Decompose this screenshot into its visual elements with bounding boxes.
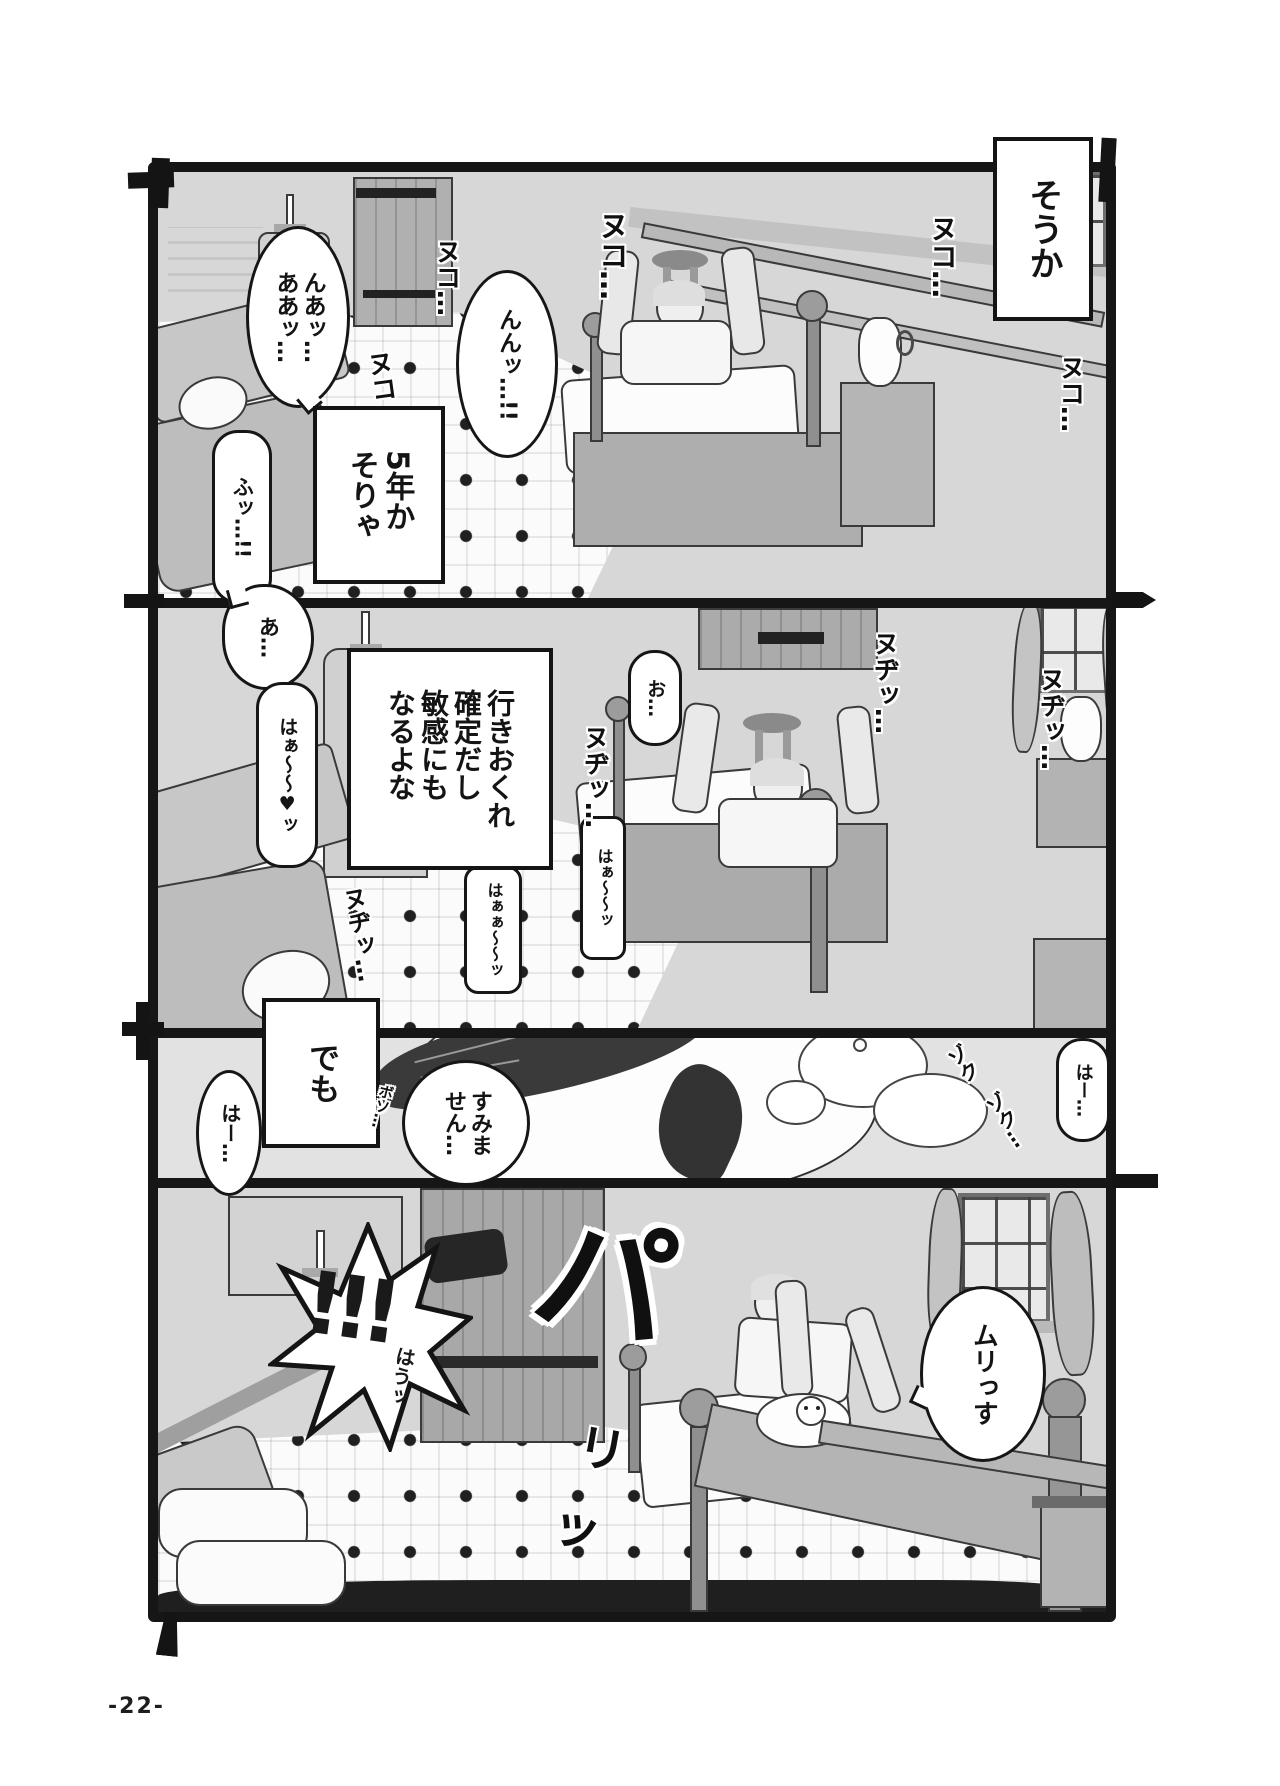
jug-handle — [896, 330, 914, 356]
face-eye-dot — [816, 1406, 820, 1410]
bed-post-finial — [796, 290, 828, 322]
border-tick — [136, 1002, 149, 1060]
door-hinge — [356, 188, 436, 198]
caption-box-monologue: 行きおくれ 確定だし 敏感にも なるよな — [347, 648, 553, 870]
bubble-text: はぁ〜〜ッ — [594, 848, 613, 928]
caption-text: そうか — [1023, 178, 1063, 280]
side-table — [1033, 938, 1113, 1030]
speech-bubble-moan: んんッ…!! — [456, 270, 558, 458]
steam-puff — [766, 1080, 826, 1125]
speech-bubble-sigh: はぁ〜〜ッ — [580, 816, 626, 960]
curtain — [1046, 1190, 1098, 1377]
bubble-text: ふッ…!! — [230, 476, 255, 558]
sfx-nuko: ヌコ… — [1052, 354, 1089, 432]
burst-exclaim-text: !!! — [297, 1252, 398, 1363]
speech-bubble-sigh-heart: はぁ〜〜♥ッ — [256, 682, 318, 868]
caption-text: 行きおくれ 確定だし 敏感にも なるよな — [384, 689, 516, 829]
manga-page: そうか 5年か そりゃ んあッ… ああッ… んんッ…!! ふッ…!! ヌコ… ヌ… — [0, 0, 1280, 1786]
stool-seat — [652, 250, 708, 270]
border-tick — [1112, 1174, 1158, 1188]
bubble-text: んんッ…!! — [493, 308, 520, 421]
wrapped-leg — [842, 1304, 904, 1416]
caption-box-demo: でも — [262, 998, 380, 1148]
speech-bubble-o: お… — [628, 650, 682, 746]
boy-body — [718, 798, 838, 868]
bench-cushion — [176, 1540, 346, 1606]
speech-bubble-moan: んあッ… ああッ… — [246, 226, 350, 408]
sfx-nuko: ヌコ — [359, 348, 403, 405]
candle — [361, 611, 370, 648]
sfx-nuko: ヌコ… — [922, 214, 962, 298]
side-table-top — [1032, 1496, 1116, 1508]
caption-text: 5年か そりゃ — [344, 450, 415, 540]
sfx-nuko: ヌコ… — [428, 238, 465, 316]
wrapped-leg — [774, 1279, 814, 1399]
boy-hair — [653, 280, 705, 306]
border-tick — [1112, 592, 1156, 608]
bed-post — [806, 307, 821, 447]
bubble-text: ムリっす — [968, 1322, 999, 1426]
bubble-text: あ… — [256, 616, 281, 658]
speech-bubble-sigh: はー… — [196, 1070, 262, 1196]
bubble-text: すみま せん… — [440, 1090, 492, 1156]
bubble-text: はー… — [217, 1103, 241, 1163]
door-hinge — [363, 290, 435, 298]
border-tick — [124, 594, 164, 608]
boy-body — [620, 320, 732, 385]
speech-bubble-sigh: はー… — [1056, 1038, 1110, 1142]
caption-text: でも — [303, 1042, 340, 1104]
speech-bubble-refusal: ムリっす — [920, 1286, 1046, 1462]
sfx-nudi: ヌヂッ… — [576, 724, 613, 828]
door-hinge — [758, 632, 824, 644]
steam-dot — [853, 1038, 867, 1052]
caption-box-souka: そうか — [993, 137, 1093, 321]
sfx-nudi: ヌヂッ… — [866, 630, 903, 734]
bubble-text: お… — [644, 679, 666, 717]
candle — [286, 194, 294, 226]
side-table — [1040, 1503, 1112, 1608]
speech-bubble-apology: すみま せん… — [402, 1060, 530, 1186]
bubble-text: はー… — [1072, 1063, 1093, 1117]
border-tick — [128, 171, 175, 189]
bed-frame — [573, 432, 863, 547]
side-shelf — [1036, 758, 1116, 848]
face-eye-dot — [804, 1406, 808, 1410]
jug — [858, 317, 902, 387]
stool-seat — [743, 713, 801, 733]
boy-hair — [750, 758, 804, 786]
bubble-text: はぁ〜〜♥ッ — [276, 717, 298, 834]
side-table — [840, 382, 935, 527]
bubble-text: んあッ… ああッ… — [271, 271, 325, 363]
bubble-text: はぁぁ〜〜ッ — [484, 882, 503, 978]
page-number: -22- — [108, 1694, 165, 1719]
bed-post — [613, 708, 625, 823]
caption-box-gonen: 5年か そりゃ — [313, 406, 445, 584]
speech-bubble-sigh: ふッ…!! — [212, 430, 272, 604]
sfx-nuko: ヌコ… — [588, 210, 632, 300]
speech-bubble-sigh: はぁぁ〜〜ッ — [464, 866, 522, 994]
sfx-nudi: ヌヂッ… — [1032, 666, 1069, 770]
steam-puff — [873, 1073, 988, 1148]
